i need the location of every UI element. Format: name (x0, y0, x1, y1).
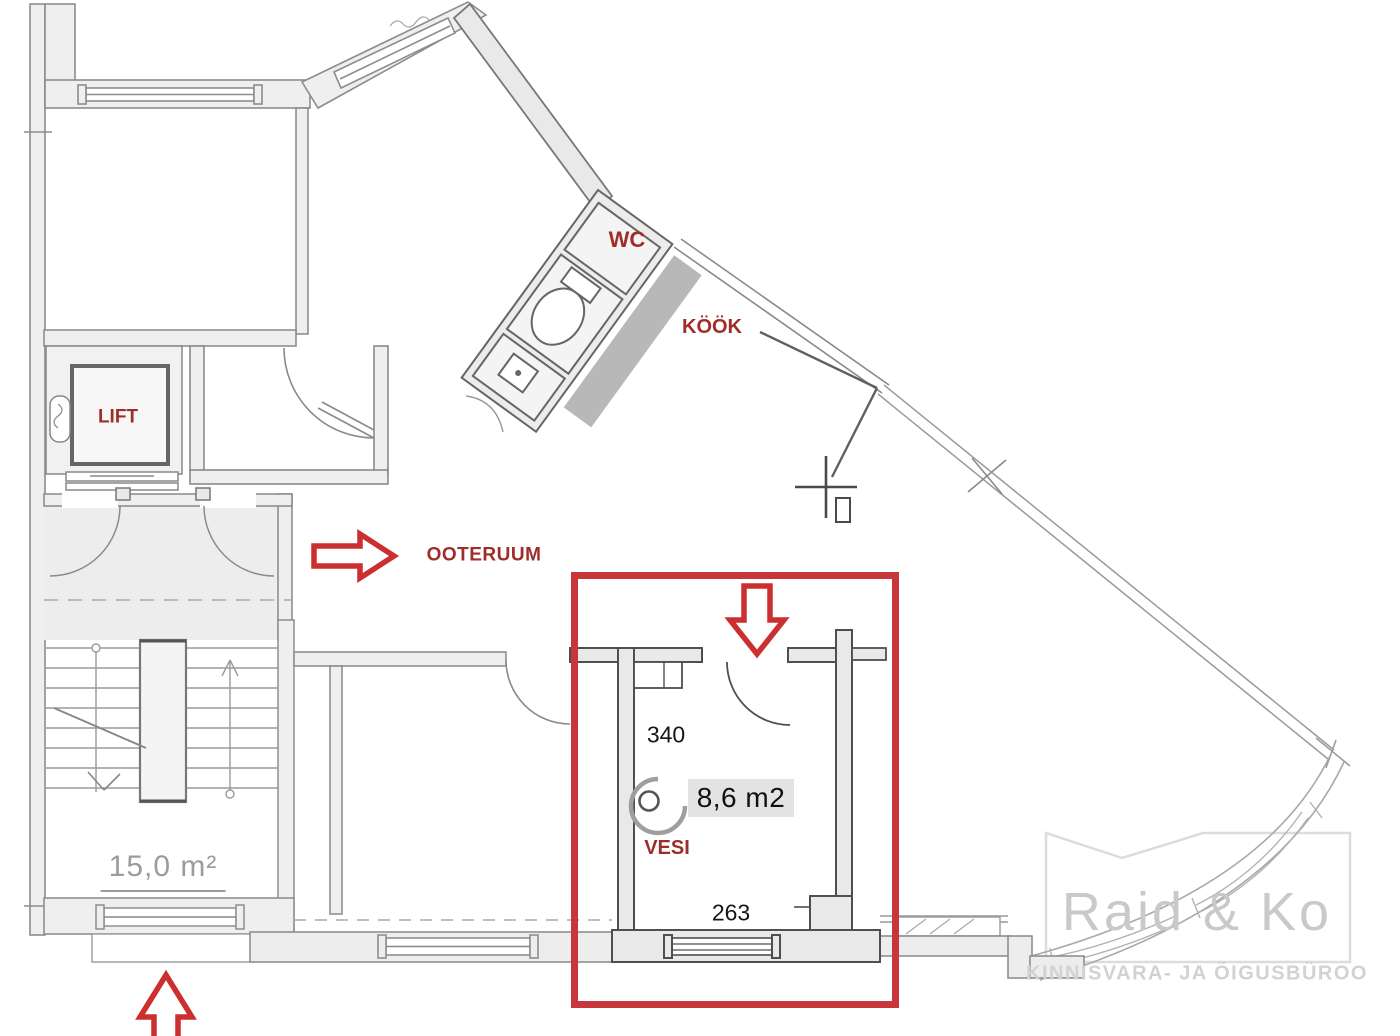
room-label-wc: WC (609, 229, 646, 251)
arrow-up-icon (140, 975, 192, 1036)
corridor-and-right-wall (674, 239, 1350, 768)
dimension-width-top: 340 (647, 724, 685, 747)
room-label-vesi: VESI (644, 838, 690, 858)
room-top-left (44, 108, 308, 346)
room-label-kook: KÖÖK (682, 317, 742, 337)
room-center-bottom (294, 652, 570, 914)
arrow-right-icon (314, 534, 394, 578)
arrow-down-icon (730, 586, 784, 654)
watermark-tagline: KINNISVARA- JA ÕIGUSBÜROO (1026, 963, 1368, 986)
room-curved-door (190, 346, 388, 484)
staircase (44, 620, 294, 962)
watermark-brand: Raid & Ko (1062, 881, 1332, 943)
wc-room (462, 190, 707, 456)
room-label-lift: LIFT (98, 408, 138, 427)
floor-plan: WC KÖÖK LIFT OOTERUUM VESI 340 263 8,6 m… (0, 0, 1400, 1036)
entry-hall (44, 488, 292, 640)
curved-wall (1024, 756, 1344, 980)
area-label-highlighted-room: 8,6 m2 (688, 779, 794, 817)
dimension-width-bottom: 263 (712, 902, 750, 925)
area-label-staircase: 15,0 m² (101, 850, 226, 892)
room-label-ooteruum: OOTERUUM (427, 546, 542, 565)
